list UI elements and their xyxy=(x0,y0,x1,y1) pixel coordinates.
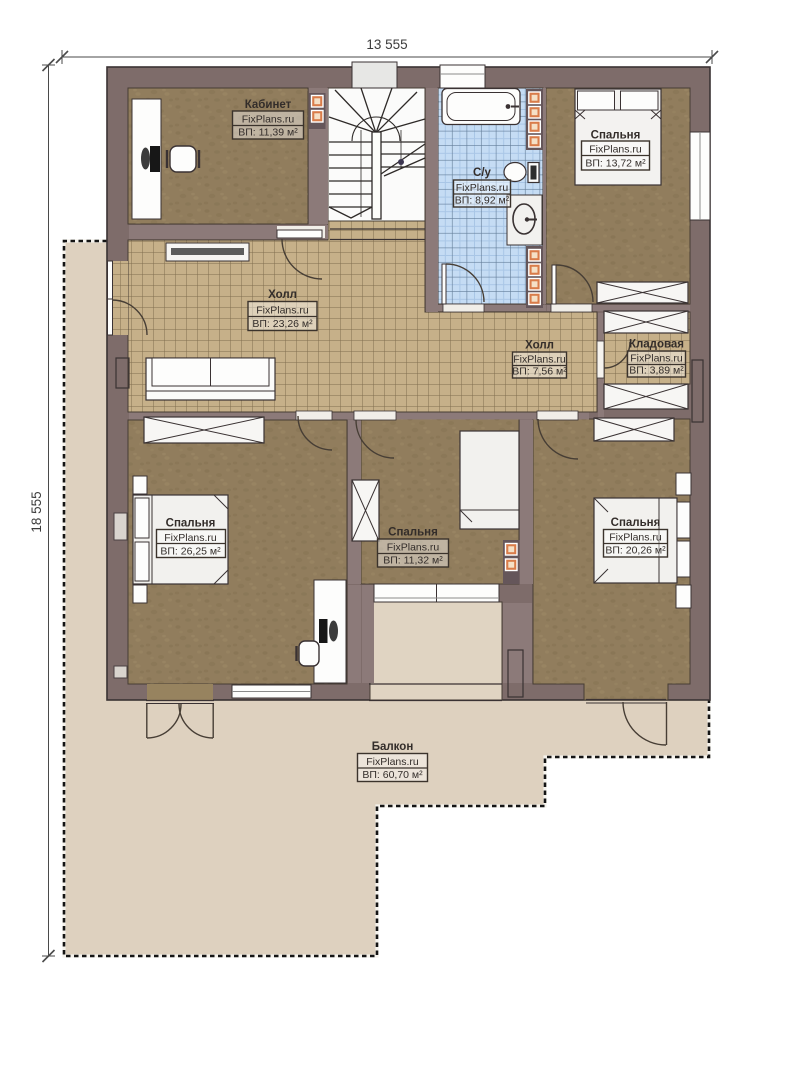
svg-text:Балкон: Балкон xyxy=(372,741,414,753)
svg-text:FixPlans.ru: FixPlans.ru xyxy=(164,532,217,544)
svg-text:ВП: 26,25 м²: ВП: 26,25 м² xyxy=(160,545,221,557)
svg-text:Спальня: Спальня xyxy=(591,130,641,142)
svg-text:18 555: 18 555 xyxy=(29,491,44,532)
svg-text:ВП: 11,39 м²: ВП: 11,39 м² xyxy=(238,127,298,139)
svg-text:ВП: 3,89 м²: ВП: 3,89 м² xyxy=(629,365,684,377)
svg-text:FixPlans.ru: FixPlans.ru xyxy=(589,144,642,156)
svg-text:FixPlans.ru: FixPlans.ru xyxy=(387,541,440,553)
svg-text:Спальня: Спальня xyxy=(611,517,661,529)
svg-text:13 555: 13 555 xyxy=(366,37,407,52)
svg-text:FixPlans.ru: FixPlans.ru xyxy=(630,352,683,364)
svg-text:FixPlans.ru: FixPlans.ru xyxy=(366,756,419,768)
svg-text:FixPlans.ru: FixPlans.ru xyxy=(609,531,662,543)
svg-text:ВП: 8,92 м²: ВП: 8,92 м² xyxy=(455,195,510,207)
svg-text:ВП: 23,26 м²: ВП: 23,26 м² xyxy=(252,318,313,330)
svg-text:Холл: Холл xyxy=(525,340,554,352)
svg-text:FixPlans.ru: FixPlans.ru xyxy=(256,304,309,316)
svg-text:ВП: 11,32 м²: ВП: 11,32 м² xyxy=(383,555,443,567)
svg-text:ВП: 13,72 м²: ВП: 13,72 м² xyxy=(585,158,646,170)
svg-text:Спальня: Спальня xyxy=(388,527,438,539)
svg-text:ВП: 20,26 м²: ВП: 20,26 м² xyxy=(605,545,666,557)
svg-text:ВП: 60,70 м²: ВП: 60,70 м² xyxy=(362,769,423,781)
svg-text:FixPlans.ru: FixPlans.ru xyxy=(456,182,509,194)
svg-text:Спальня: Спальня xyxy=(166,518,216,530)
svg-text:С/у: С/у xyxy=(473,167,492,179)
svg-text:Кладовая: Кладовая xyxy=(629,339,684,351)
svg-text:ВП: 7,56 м²: ВП: 7,56 м² xyxy=(512,366,567,378)
svg-text:FixPlans.ru: FixPlans.ru xyxy=(513,353,566,365)
svg-text:Кабинет: Кабинет xyxy=(245,99,292,111)
svg-text:Холл: Холл xyxy=(268,289,297,301)
svg-text:FixPlans.ru: FixPlans.ru xyxy=(242,113,295,125)
